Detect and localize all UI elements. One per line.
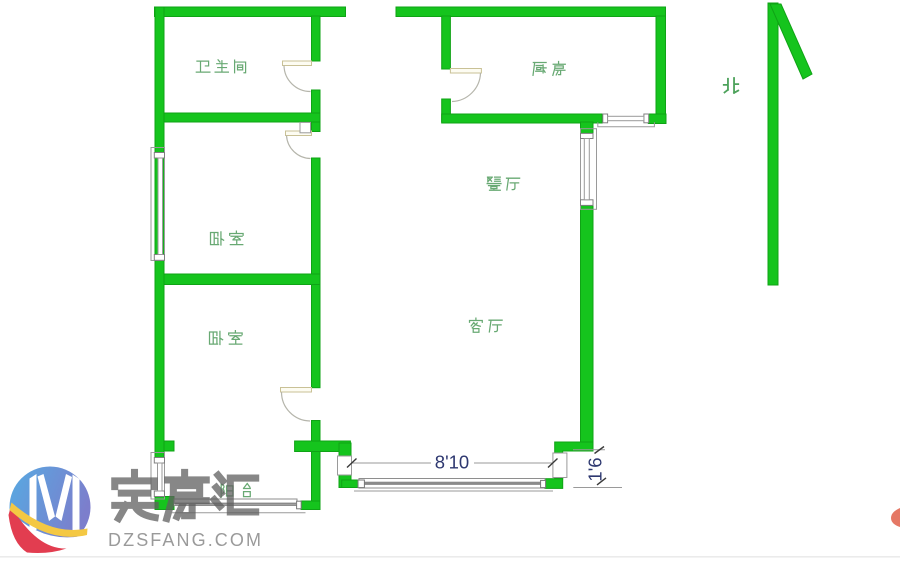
svg-text:1'6: 1'6: [585, 457, 606, 481]
svg-text:DZSFANG.COM: DZSFANG.COM: [108, 530, 263, 550]
svg-text:8'10: 8'10: [435, 452, 469, 473]
